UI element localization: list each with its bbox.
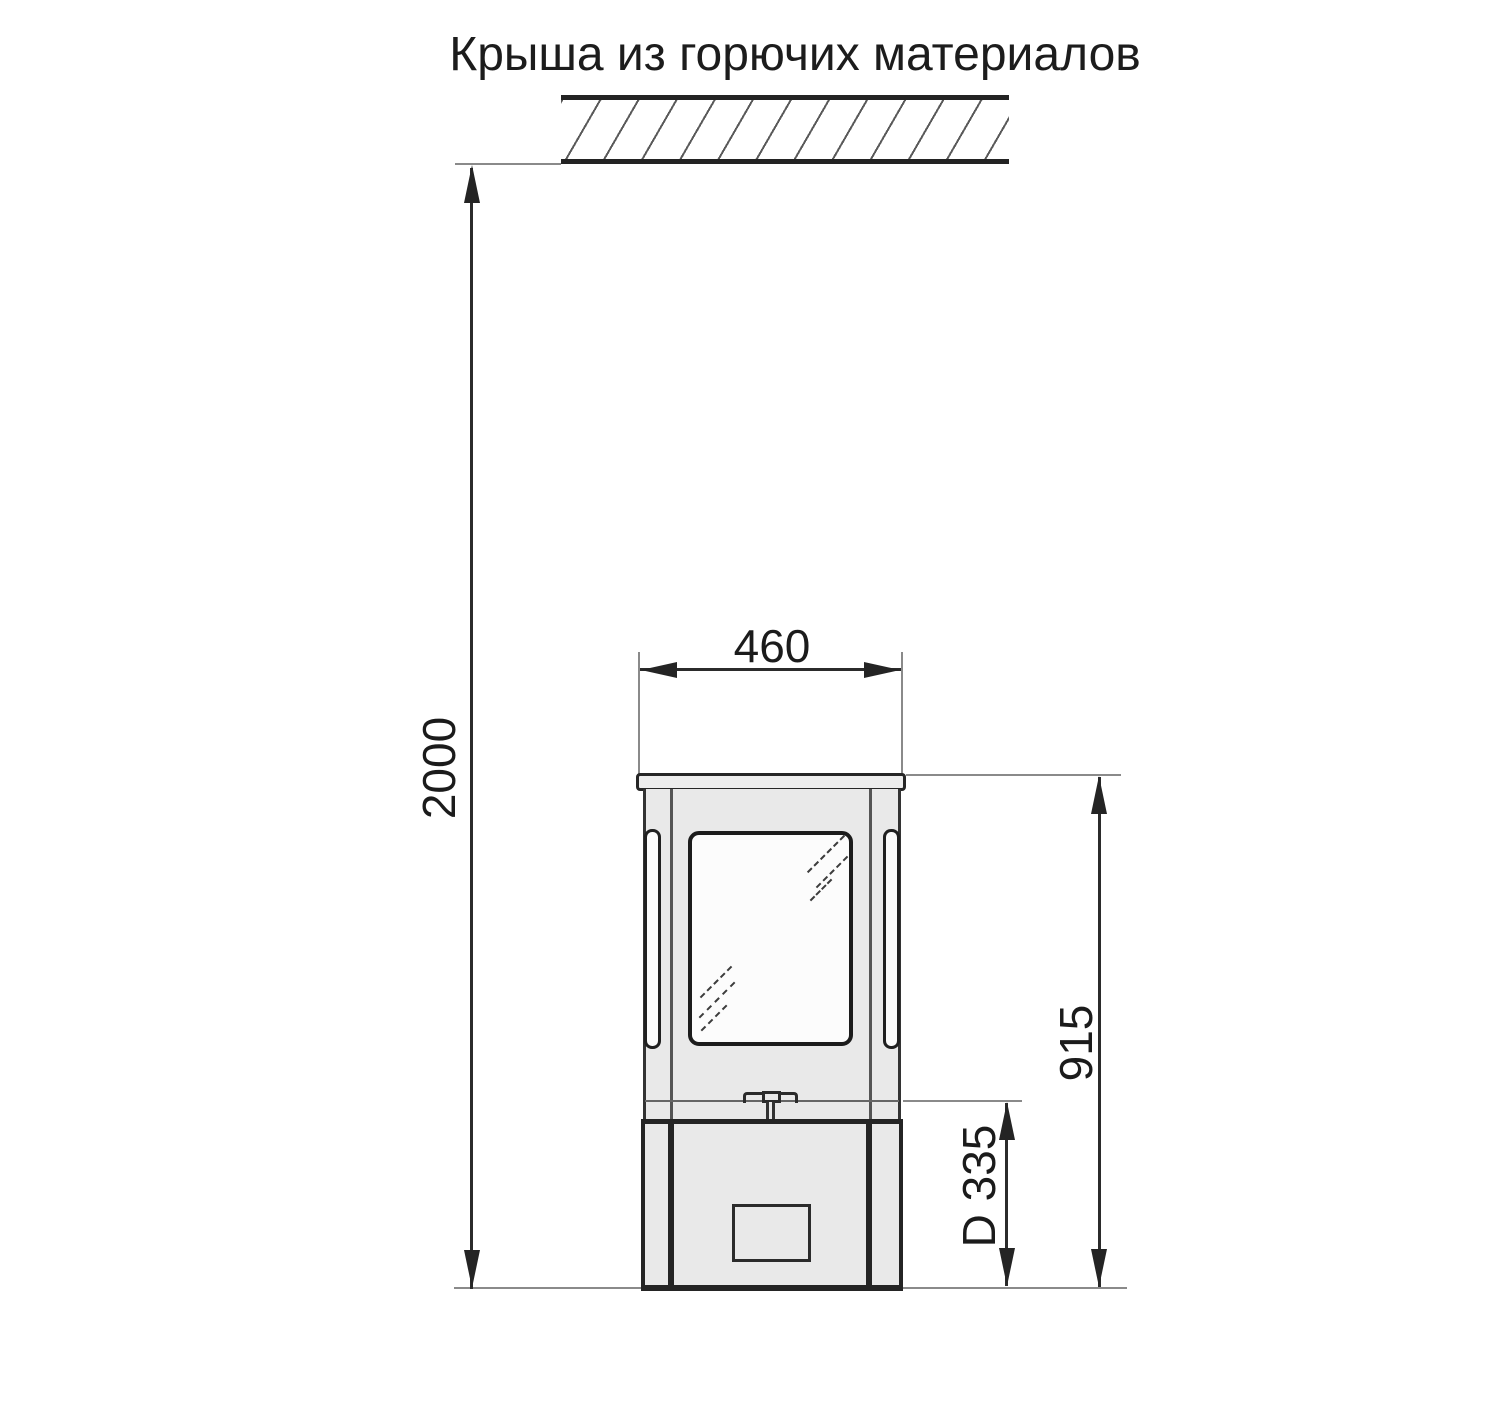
- side-window-left: [644, 829, 661, 1049]
- glass-reflection: [701, 1005, 728, 1032]
- diagram-title: Крыша из горючих материалов: [400, 26, 1190, 84]
- technical-drawing-canvas: Крыша из горючих материалов 2000 460 9: [0, 0, 1500, 1427]
- ash-pan-door: [732, 1204, 811, 1262]
- roof-hatch-section: [561, 95, 1009, 164]
- label-stove-height: 915: [1051, 963, 1101, 1123]
- stove-base-edge-left: [668, 1124, 674, 1285]
- arrow-up-roof-clearance: [464, 165, 480, 203]
- arrow-down-roof-clearance: [464, 1250, 480, 1288]
- floor-line-left: [454, 1287, 641, 1289]
- label-roof-clearance: 2000: [414, 668, 464, 868]
- arrow-down-stove-height: [1091, 1249, 1107, 1287]
- arrow-up-stove-height: [1091, 776, 1107, 814]
- extension-line-width-right: [901, 652, 903, 776]
- floor-line-right: [903, 1287, 1127, 1289]
- stove-glass-door: [688, 831, 853, 1046]
- label-flue-outlet: D 335: [954, 1086, 1004, 1286]
- stove-front-edge-left: [670, 789, 673, 1120]
- extension-line-stove-top: [906, 774, 1121, 776]
- glass-reflection: [700, 966, 733, 999]
- stove-base-edge-right: [866, 1124, 872, 1285]
- door-handle-stem: [766, 1102, 775, 1120]
- label-stove-width: 460: [672, 621, 872, 671]
- dimension-line-roof-clearance: [470, 168, 473, 1289]
- glass-reflection: [807, 835, 845, 873]
- stove-front-edge-right: [869, 789, 872, 1120]
- side-window-right: [883, 829, 900, 1049]
